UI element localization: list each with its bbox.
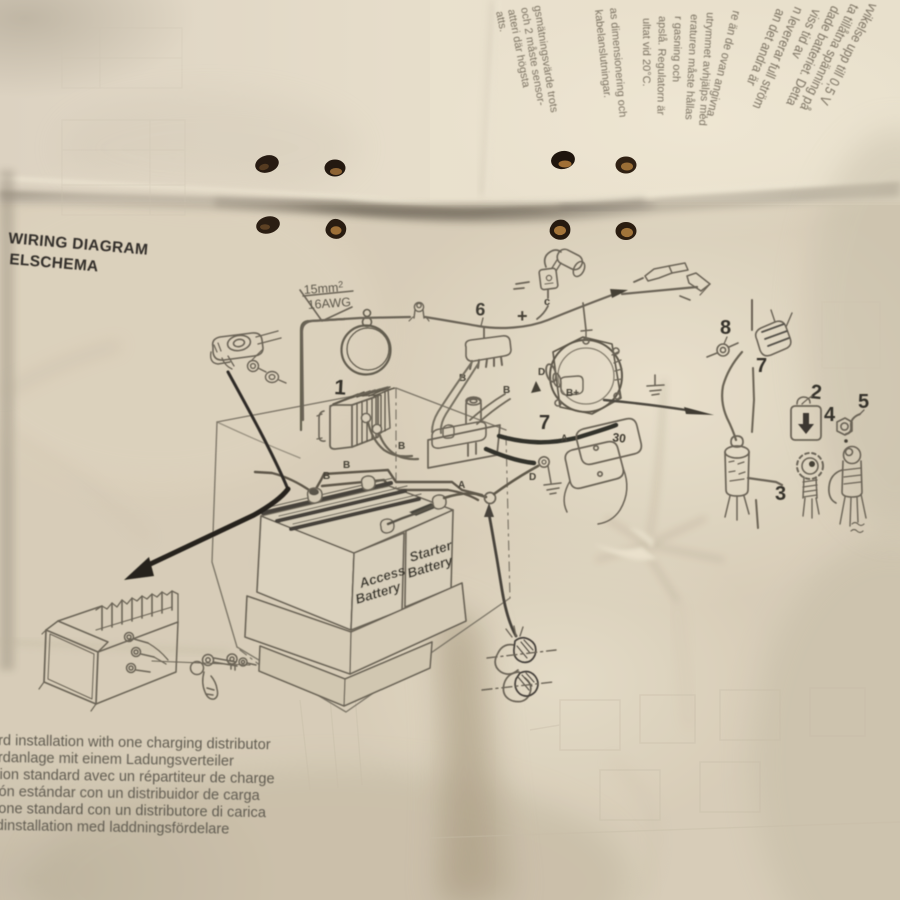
svg-text:B: B [398, 441, 405, 452]
svg-text:+: + [517, 306, 528, 326]
svg-text:7: 7 [539, 412, 550, 434]
svg-text:3: 3 [775, 483, 786, 505]
svg-text:4: 4 [824, 404, 836, 426]
svg-text:2: 2 [809, 381, 822, 404]
svg-text:A: A [458, 480, 465, 491]
svg-text:8: 8 [720, 317, 731, 339]
svg-text:1: 1 [334, 376, 347, 400]
svg-text:6: 6 [475, 299, 486, 320]
svg-text:apslå. Regulatorn är: apslå. Regulatorn är [654, 16, 668, 116]
svg-text:B: B [343, 460, 350, 471]
svg-text:30: 30 [612, 430, 627, 446]
svg-text:A: A [561, 433, 568, 443]
svg-text:ultat vid 20°C.: ultat vid 20°C. [640, 18, 652, 87]
svg-text:D: D [538, 367, 545, 378]
svg-text:B: B [323, 471, 330, 482]
svg-text:B+: B+ [566, 388, 579, 399]
svg-text:r gasning och: r gasning och [670, 16, 684, 82]
svg-text:15mm2: 15mm2 [303, 279, 344, 297]
svg-text:D: D [529, 472, 536, 483]
svg-text:7: 7 [756, 355, 767, 377]
